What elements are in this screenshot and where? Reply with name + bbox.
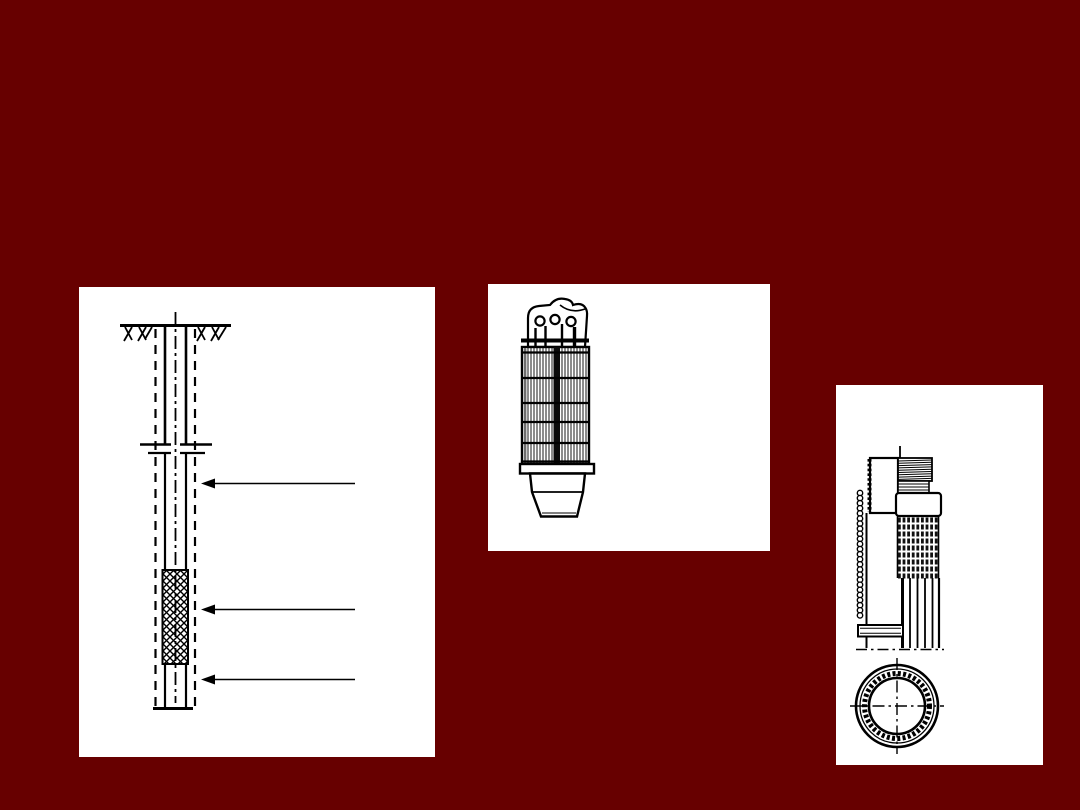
figure-panel-borehole-section: [79, 287, 435, 757]
section-cut-cap-block: [870, 458, 899, 513]
pointer-arrow-upper: [201, 479, 355, 489]
circular-cross-section-with-bead-ring: [850, 658, 944, 754]
figure-panel-wire-wound-screen: [836, 385, 1043, 765]
sump-section: [153, 664, 193, 709]
pointer-arrow-middle: [201, 605, 355, 615]
presentation-slide: [0, 0, 1080, 810]
vertical-screen-rods: [903, 578, 940, 648]
well-point-strainer-drawing: [488, 284, 770, 551]
pointer-arrow-lower: [201, 675, 355, 685]
bottom-collar: [520, 464, 594, 474]
tapered-drive-point: [530, 474, 585, 517]
slotted-screen-body: [522, 347, 589, 464]
threaded-top-nipple: [898, 458, 932, 493]
figure-panel-well-point-strainer: [488, 284, 770, 551]
coupling-collar: [896, 493, 941, 516]
borehole-section-drawing: [79, 287, 435, 757]
wire-wrap-bead-rows: [898, 517, 939, 579]
wire-wound-screen-drawing: [836, 385, 1043, 765]
side-wire-bead-strip: [857, 490, 862, 618]
crosshatched-screen-section: [163, 570, 189, 664]
lower-fitting-box: [858, 625, 903, 637]
center-dark-slot: [554, 347, 561, 464]
